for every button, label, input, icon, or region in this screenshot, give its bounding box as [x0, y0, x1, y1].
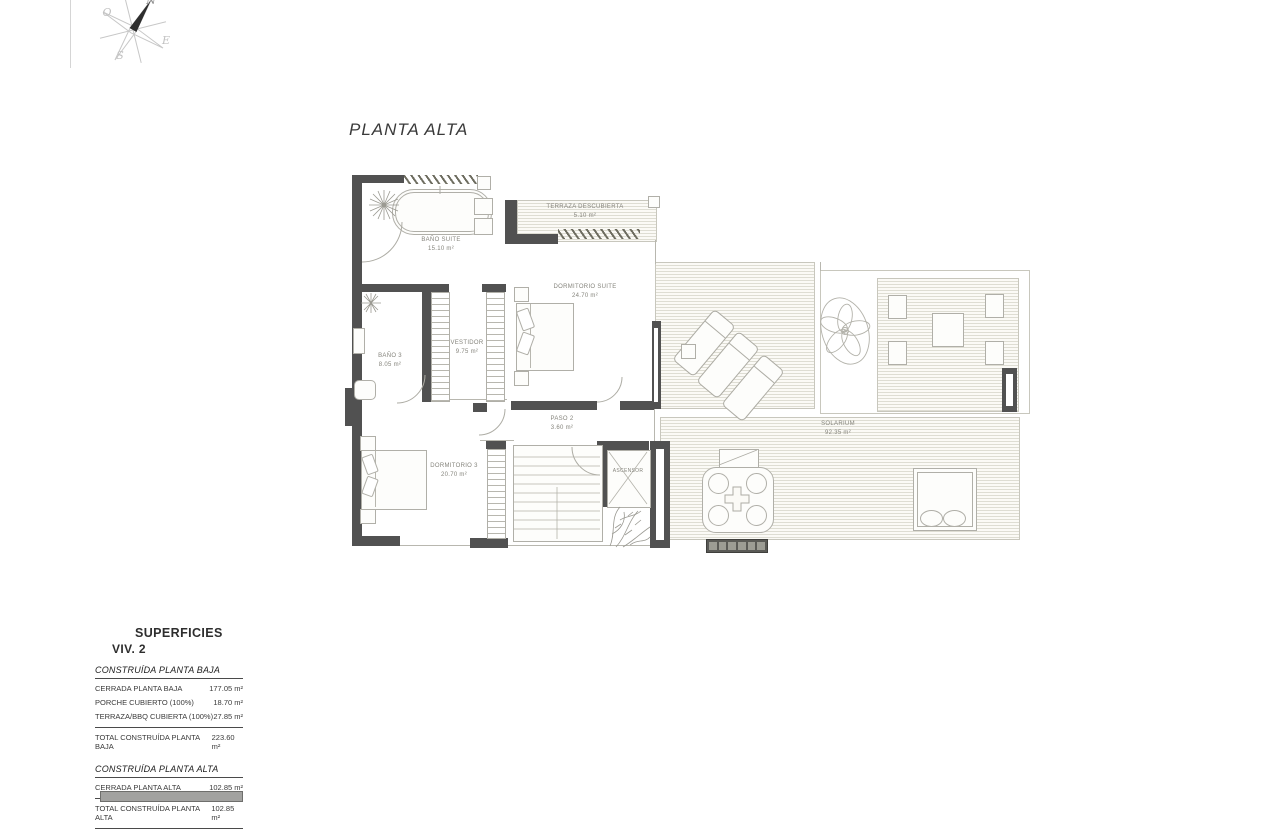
section-header-planta-alta: CONSTRUÍDA PLANTA ALTA — [95, 764, 243, 778]
nightstand — [360, 509, 376, 524]
room-label-ascensor: ASCENSOR — [607, 468, 649, 476]
table-row: TERRAZA/BBQ CUBIERTA (100%)27.85 m² — [95, 712, 243, 721]
wall-segment — [422, 284, 449, 292]
wall-segment — [511, 401, 597, 410]
chair — [985, 341, 1004, 365]
side-table — [681, 344, 696, 359]
room-label-bano-suite: BAÑO SUITE15.10 m² — [391, 236, 491, 255]
room-label-bano-3: BAÑO 38.05 m² — [360, 352, 420, 371]
ottoman — [719, 449, 759, 468]
plan-title: PLANTA ALTA — [349, 120, 468, 140]
toilet — [354, 380, 376, 400]
railing-hatch — [558, 229, 640, 239]
bbq-grill — [706, 539, 768, 553]
chair — [985, 294, 1004, 318]
armchair — [746, 473, 767, 494]
armchair — [708, 473, 729, 494]
page-edge-line — [70, 0, 71, 68]
elevator-shaft — [607, 450, 651, 508]
compass-east-label: E — [161, 34, 170, 47]
nightstand — [514, 371, 529, 386]
room-label-vestidor: VESTIDOR9.75 m² — [437, 339, 497, 358]
table-separator — [95, 727, 243, 728]
legend-color-bar — [100, 791, 243, 802]
plant-icon — [610, 507, 650, 547]
compass-rose-icon: O N E S — [83, 0, 187, 72]
window-glass — [1006, 374, 1013, 406]
wall-line — [654, 409, 655, 442]
armchair — [708, 505, 729, 526]
armchair — [746, 505, 767, 526]
room-label-paso-2: PASO 23.60 m² — [522, 415, 602, 434]
cushion — [920, 510, 943, 527]
wall-segment — [597, 441, 649, 450]
sink — [474, 198, 493, 215]
chair — [888, 295, 907, 319]
cushion — [943, 510, 966, 527]
wall-segment — [620, 401, 654, 410]
nightstand — [514, 287, 529, 302]
wall-segment — [352, 175, 404, 183]
sink — [353, 328, 365, 354]
compass-south-label: S — [116, 49, 124, 62]
section-header-planta-baja: CONSTRUÍDA PLANTA BAJA — [95, 665, 243, 679]
surfaces-title: SUPERFICIES — [135, 626, 243, 640]
wall-segment — [473, 403, 487, 412]
wall-segment — [486, 441, 506, 449]
wall-segment — [422, 284, 431, 402]
floor-plan: O N E S PLANTA ALTA — [0, 0, 1280, 800]
compass-west-label: O — [102, 6, 111, 19]
wall-segment — [505, 234, 558, 244]
room-label-dormitorio-suite: DORMITORIO SUITE24.70 m² — [535, 283, 635, 302]
table-total-row: TOTAL CONSTRUÍDA PLANTA BAJA223.60 m² — [95, 733, 243, 751]
nightstand — [360, 436, 376, 451]
window-glass — [656, 449, 664, 540]
compass-north-label: N — [145, 0, 156, 7]
wall-segment — [482, 284, 506, 292]
wall-segment — [352, 536, 400, 546]
window-glass — [654, 328, 658, 402]
window-hatch — [404, 175, 478, 184]
chair — [888, 341, 907, 365]
wall-line — [655, 240, 656, 264]
wall-segment — [352, 284, 430, 292]
wall-segment — [470, 538, 508, 548]
table-row: CERRADA PLANTA BAJA177.05 m² — [95, 684, 243, 693]
dining-table — [932, 313, 964, 347]
table-total-row: TOTAL CONSTRUÍDA PLANTA ALTA102.85 m² — [95, 804, 243, 822]
wall-line — [820, 262, 821, 271]
room-label-terraza-descubierta: TERRAZA DESCUBIERTA5.10 m² — [535, 203, 635, 222]
column — [648, 196, 660, 208]
sink — [474, 218, 493, 235]
column — [477, 176, 491, 190]
table-row: PORCHE CUBIERTO (100%)18.70 m² — [95, 698, 243, 707]
room-label-dormitorio-3: DORMITORIO 320.70 m² — [414, 462, 494, 481]
room-label-solarium: SOLARIUM92.35 m² — [788, 420, 888, 439]
staircase — [513, 445, 603, 542]
surfaces-subtitle: VIV. 2 — [112, 642, 243, 656]
